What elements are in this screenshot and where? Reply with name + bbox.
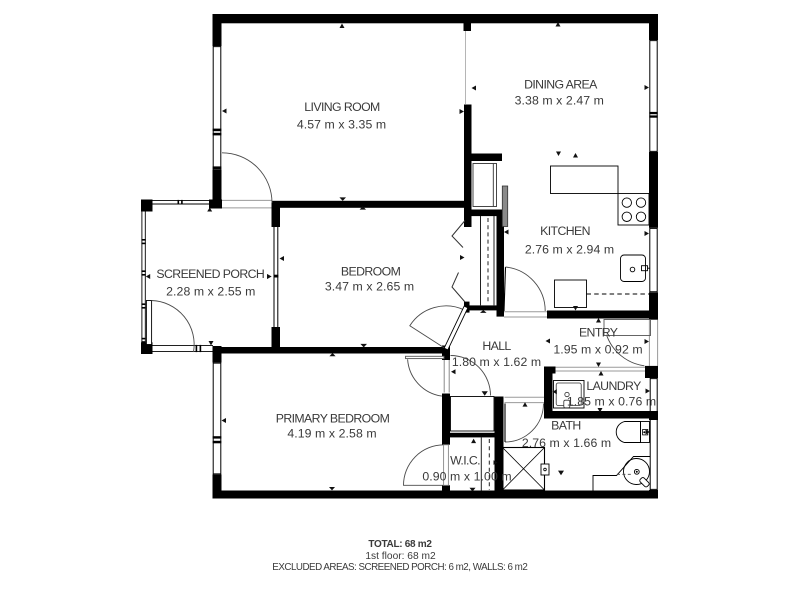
svg-text:3.38 m x 2.47 m: 3.38 m x 2.47 m [515,93,604,107]
svg-text:2.76 m x 2.94 m: 2.76 m x 2.94 m [525,243,614,257]
svg-text:TOTAL: 68 m2: TOTAL: 68 m2 [368,539,432,550]
svg-text:BATH: BATH [551,419,580,433]
svg-text:4.19 m x 2.58 m: 4.19 m x 2.58 m [287,427,376,441]
svg-text:0.90 m x 1.00 m: 0.90 m x 1.00 m [422,469,511,483]
svg-text:BEDROOM: BEDROOM [341,265,401,279]
svg-text:2.28 m x 2.55 m: 2.28 m x 2.55 m [166,285,255,299]
svg-text:1.95 m x 0.92 m: 1.95 m x 0.92 m [553,343,642,357]
svg-text:SCREENED PORCH: SCREENED PORCH [156,267,264,281]
svg-text:1.85 m x 0.76 m: 1.85 m x 0.76 m [567,395,656,409]
svg-text:PRIMARY BEDROOM: PRIMARY BEDROOM [276,411,390,425]
svg-text:4.57 m x 3.35 m: 4.57 m x 3.35 m [297,118,386,132]
svg-text:1st floor: 68 m2: 1st floor: 68 m2 [365,551,436,562]
svg-text:1.80 m x 1.62 m: 1.80 m x 1.62 m [452,355,541,369]
svg-text:EXCLUDED AREAS: SCREENED PORCH: EXCLUDED AREAS: SCREENED PORCH: 6 m2, WA… [272,562,527,573]
svg-text:LAUNDRY: LAUNDRY [586,379,641,393]
svg-text:W.I.C.: W.I.C. [450,454,480,468]
svg-text:HALL: HALL [482,339,511,353]
svg-text:LIVING ROOM: LIVING ROOM [304,100,380,114]
svg-text:KITCHEN: KITCHEN [540,224,590,238]
svg-text:ENTRY: ENTRY [579,326,618,340]
svg-text:DINING AREA: DINING AREA [524,77,598,91]
svg-text:2.76 m x 1.66 m: 2.76 m x 1.66 m [522,436,611,450]
svg-text:3.47 m x 2.65 m: 3.47 m x 2.65 m [325,279,414,293]
